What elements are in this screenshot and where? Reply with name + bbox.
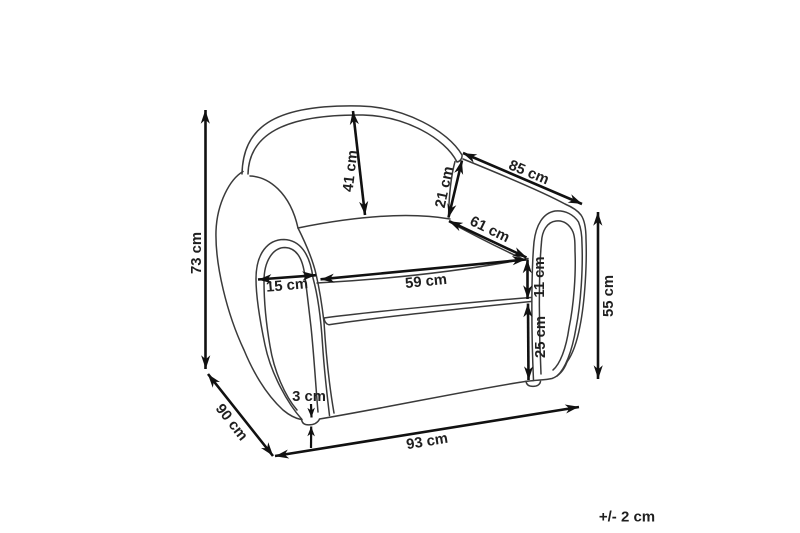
svg-text:90 cm: 90 cm: [212, 401, 251, 444]
svg-text:41 cm: 41 cm: [341, 149, 362, 193]
svg-text:+/- 2 cm: +/- 2 cm: [599, 509, 655, 526]
svg-text:21 cm: 21 cm: [433, 165, 457, 209]
svg-text:11 cm: 11 cm: [532, 256, 548, 297]
svg-text:59 cm: 59 cm: [404, 272, 447, 292]
svg-text:85 cm: 85 cm: [506, 158, 551, 189]
svg-text:55 cm: 55 cm: [601, 275, 617, 317]
svg-text:25 cm: 25 cm: [533, 316, 549, 358]
svg-text:73 cm: 73 cm: [189, 232, 205, 274]
svg-text:15 cm: 15 cm: [265, 276, 308, 296]
svg-text:3 cm: 3 cm: [292, 389, 326, 405]
